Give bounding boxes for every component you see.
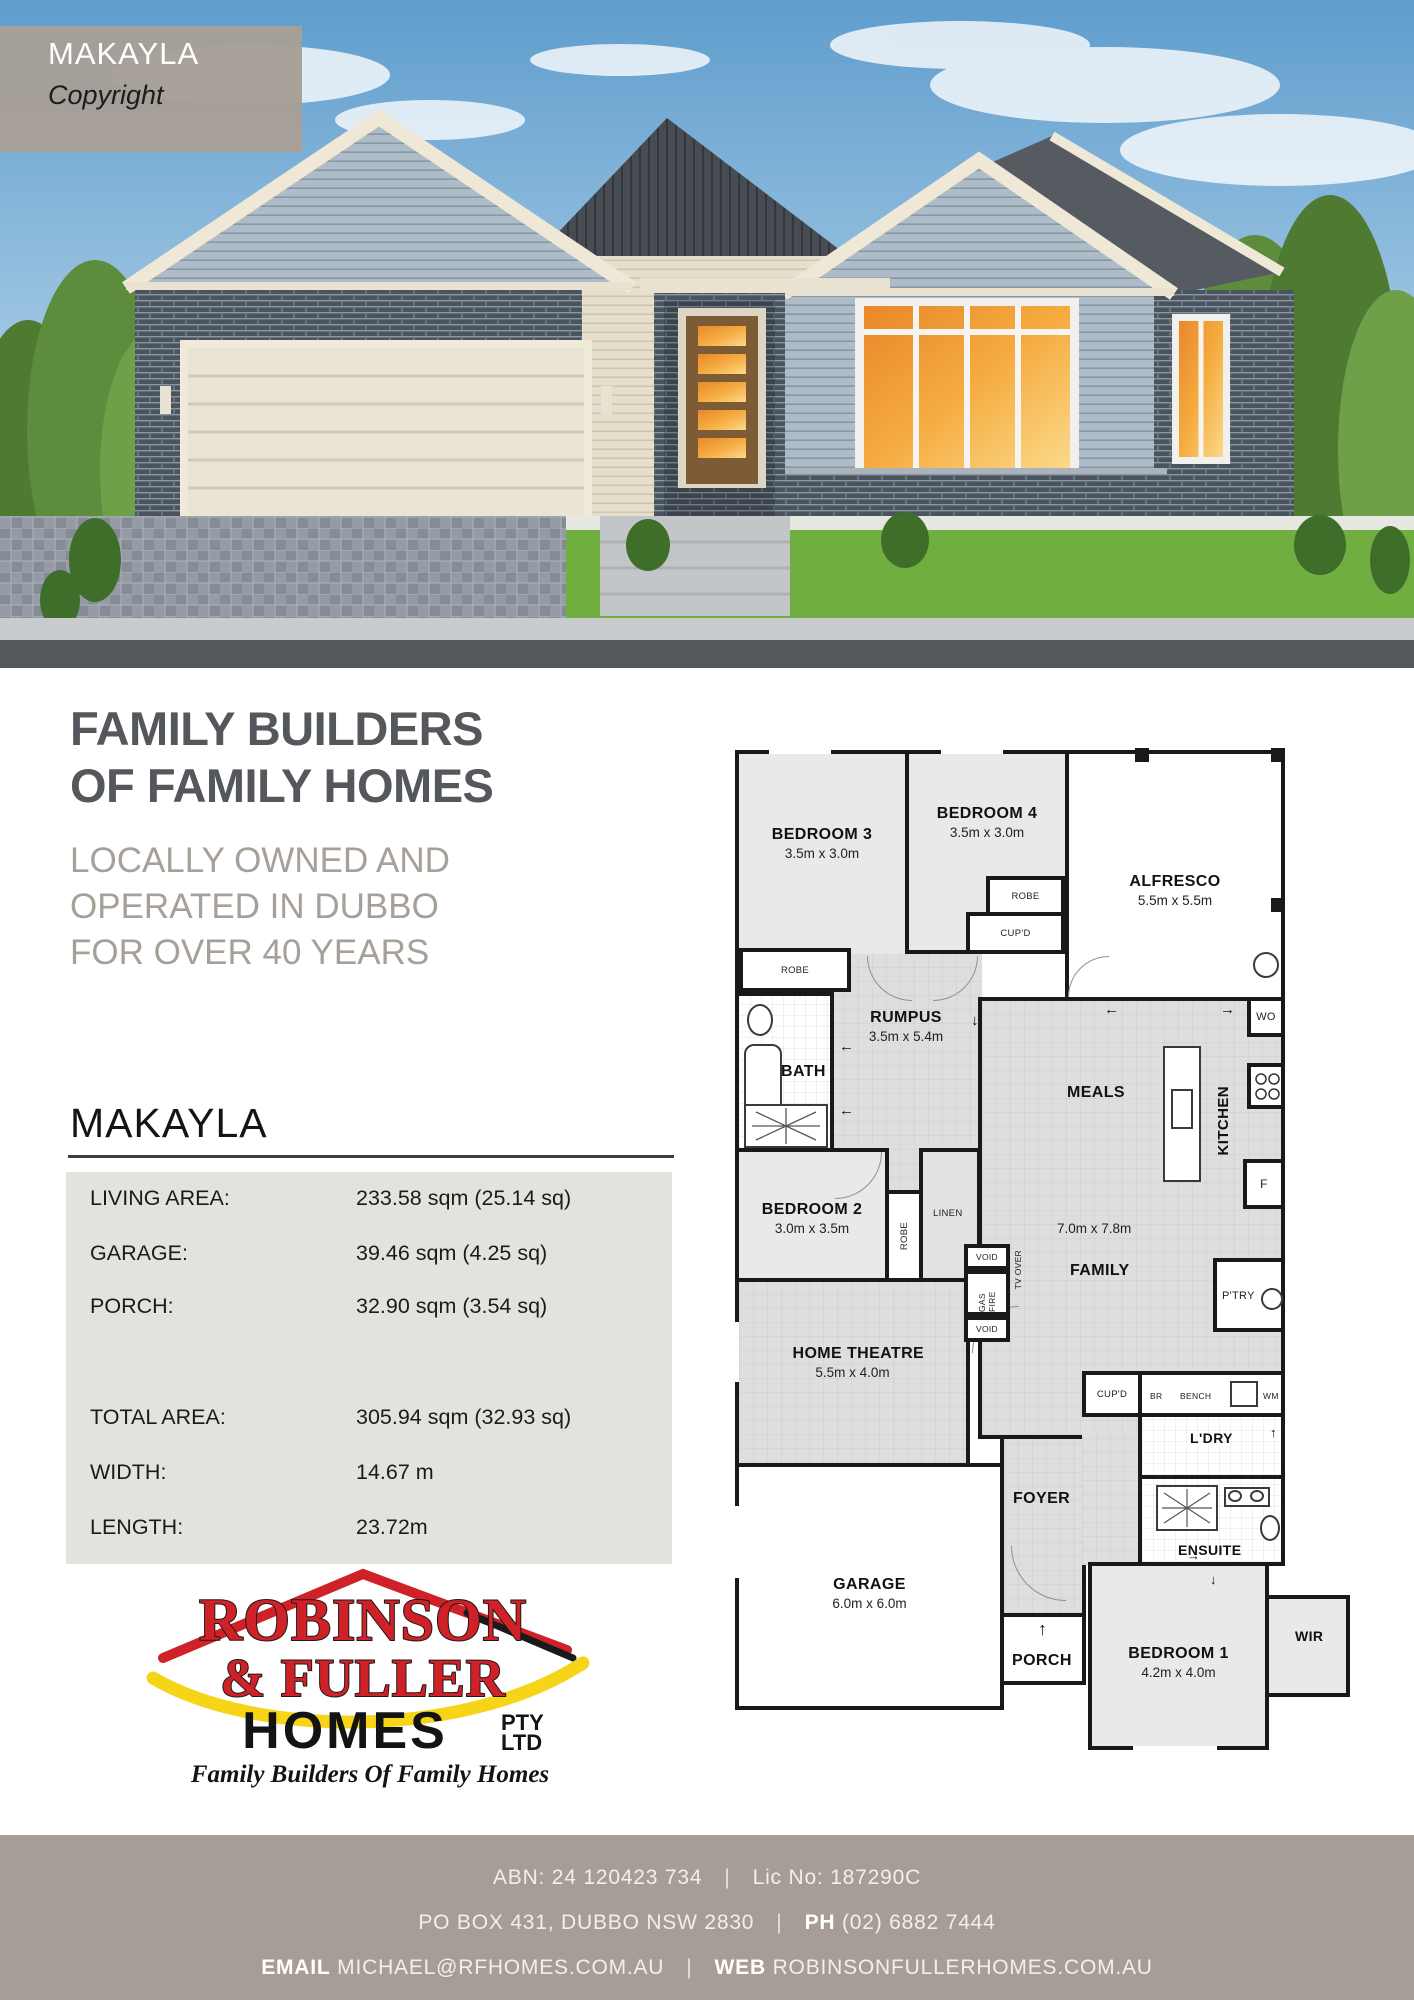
photo-label-copyright: Copyright (48, 80, 302, 111)
room-laundry: L'DRY ↑ (1138, 1413, 1285, 1479)
phone-number: (02) 6882 7444 (842, 1911, 996, 1934)
spec-value: 233.58 sqm (25.14 sq) (356, 1186, 571, 1211)
cupboard-hall: CUP'D (966, 912, 1065, 954)
subheadline-line1: LOCALLY OWNED AND (70, 838, 450, 884)
footer-line-contact: EMAIL MICHAEL@RFHOMES.COM.AU|WEB ROBINSO… (0, 1956, 1414, 1980)
void-lower: VOID (964, 1316, 1010, 1342)
wc-door-arrow-icon: ← (839, 1102, 854, 1119)
cooktop (1247, 1063, 1285, 1109)
spec-value: 305.94 sqm (32.93 sq) (356, 1405, 571, 1430)
spec-label: WIDTH: (90, 1460, 166, 1485)
laundry-door-arrow-icon: ↑ (1270, 1425, 1277, 1440)
room-garage: GARAGE 6.0m x 6.0m (735, 1463, 1004, 1710)
pantry-sink-icon (1261, 1288, 1283, 1310)
main-headline: FAMILY BUILDERS OF FAMILY HOMES (70, 700, 493, 814)
void-upper: VOID (964, 1244, 1010, 1270)
laundry-bench: BR BENCH WM (1138, 1371, 1285, 1417)
ensuite-shower-glass-icon (1156, 1485, 1218, 1531)
spec-row-length: LENGTH:23.72m (66, 1515, 672, 1543)
spec-value: 39.46 sqm (4.25 sq) (356, 1241, 547, 1266)
toilet-icon (747, 1004, 773, 1036)
svg-text:LTD: LTD (501, 1730, 542, 1755)
hallway (1082, 1433, 1142, 1565)
headline-line1: FAMILY BUILDERS (70, 700, 493, 757)
basin-icon (1228, 1490, 1242, 1502)
laundry-sink-icon (1230, 1381, 1258, 1407)
web-label: WEB (715, 1956, 766, 1979)
floor-plan: BEDROOM 3 3.5m x 3.0m BEDROOM 4 3.5m x 3… (735, 750, 1350, 1750)
room-porch: ↑ PORCH (1000, 1613, 1086, 1685)
abn-text: ABN: 24 120423 734 (493, 1866, 702, 1889)
slider-arrow-icon: ← (1104, 1001, 1119, 1018)
licence-text: Lic No: 187290C (753, 1866, 921, 1889)
web-address: ROBINSONFULLERHOMES.COM.AU (773, 1956, 1153, 1979)
window-gap (735, 1322, 739, 1382)
spec-row-porch: PORCH:32.90 sqm (3.54 sq) (66, 1294, 672, 1322)
island-sink-icon (1171, 1089, 1193, 1129)
subheadline-line3: FOR OVER 40 YEARS (70, 930, 450, 976)
svg-text:ROBINSON: ROBINSON (199, 1587, 527, 1653)
specs-table: LIVING AREA:233.58 sqm (25.14 sq) GARAGE… (66, 1172, 672, 1564)
headline-line2: OF FAMILY HOMES (70, 757, 493, 814)
svg-text:Family Builders Of Family: Family Builders Of Family Homes (190, 1761, 549, 1788)
alfresco-post (1271, 748, 1285, 762)
svg-text:HOMES: HOMES (242, 1702, 448, 1760)
footer-line-abn: ABN: 24 120423 734|Lic No: 187290C (0, 1866, 1414, 1890)
spec-label: LENGTH: (90, 1515, 183, 1540)
photo-label-title: MAKAYLA (48, 36, 302, 72)
robe-bedroom4: ROBE (986, 876, 1065, 916)
spec-label: GARAGE: (90, 1241, 188, 1266)
room-home-theatre: HOME THEATRE 5.5m x 4.0m (735, 1278, 970, 1467)
spec-value: 23.72m (356, 1515, 428, 1540)
spec-label: PORCH: (90, 1294, 174, 1319)
spec-value: 14.67 m (356, 1460, 434, 1485)
robe-bedroom2: ROBE (885, 1190, 923, 1282)
cooktop-icon (1252, 1068, 1282, 1106)
phone-label: PH (805, 1911, 836, 1934)
spec-value: 32.90 sqm (3.54 sq) (356, 1294, 547, 1319)
builder-logo-graphic: ROBINSON & FULLER HOMES PTY LTD Family B… (135, 1558, 605, 1803)
footer-bar: ABN: 24 120423 734|Lic No: 187290C PO BO… (0, 1835, 1414, 2000)
spec-label: LIVING AREA: (90, 1186, 230, 1211)
spec-row-total: TOTAL AREA:305.94 sqm (32.93 sq) (66, 1405, 672, 1433)
wall-oven: WO (1247, 997, 1285, 1037)
spec-label: TOTAL AREA: (90, 1405, 226, 1430)
window-gap (1133, 1746, 1217, 1750)
shower-glass-icon (744, 1104, 828, 1148)
cupboard-laundry: CUP'D (1082, 1371, 1142, 1417)
bedroom1-entry-arrow-icon: ↓ (1210, 1572, 1217, 1587)
email-address: MICHAEL@RFHOMES.COM.AU (337, 1956, 664, 1979)
alfresco-post (1271, 898, 1285, 912)
ensuite-toilet-icon (1260, 1515, 1280, 1541)
fridge-space: F (1243, 1159, 1285, 1209)
window-gap (941, 750, 1003, 754)
spec-row-garage: GARAGE:39.46 sqm (4.25 sq) (66, 1241, 672, 1269)
meals-entry-arrow-icon: ↓ (971, 1012, 979, 1029)
robe-bedroom3: ROBE (739, 948, 851, 992)
entry-arrow-icon: ↑ (1038, 1619, 1047, 1640)
builder-logo: ROBINSON & FULLER HOMES PTY LTD Family B… (135, 1558, 605, 1803)
bath-door-arrow-icon: ← (839, 1038, 854, 1055)
house-photo: MAKAYLA Copyright (0, 0, 1414, 668)
svg-text:& FULLER: & FULLER (220, 1648, 506, 1708)
address-text: PO BOX 431, DUBBO NSW 2830 (418, 1911, 754, 1934)
subheadline-line2: OPERATED IN DUBBO (70, 884, 450, 930)
footer-line-address: PO BOX 431, DUBBO NSW 2830|PH (02) 6882 … (0, 1911, 1414, 1935)
window-gap (769, 750, 831, 754)
room-bath: BATH (735, 992, 834, 1152)
tv-over-label: TV OVER (1013, 1250, 1023, 1289)
alfresco-post (1135, 748, 1149, 762)
slider-arrow-icon: → (1220, 1001, 1235, 1018)
email-label: EMAIL (261, 1956, 330, 1979)
room-ensuite: ENSUITE (1138, 1475, 1285, 1566)
brochure-page: MAKAYLA Copyright FAMILY BUILDERS OF FAM… (0, 0, 1414, 2000)
window-gap (735, 1506, 739, 1578)
photo-copyright-label: MAKAYLA Copyright (0, 26, 302, 152)
room-pantry: P'TRY (1213, 1258, 1285, 1332)
room-wir: WIR (1265, 1595, 1350, 1697)
ensuite-entry-arrow-icon: → (1187, 1548, 1200, 1563)
plan-name-title: MAKAYLA (70, 1100, 268, 1147)
gas-fire: GAS FIRE (964, 1270, 1010, 1316)
sink-icon (1253, 952, 1279, 978)
room-bedroom1: BEDROOM 1 4.2m x 4.0m ↓ (1088, 1562, 1269, 1750)
title-divider (68, 1155, 674, 1158)
spec-row-width: WIDTH:14.67 m (66, 1460, 672, 1488)
spec-row-living: LIVING AREA:233.58 sqm (25.14 sq) (66, 1186, 672, 1214)
basin-icon (1250, 1490, 1264, 1502)
sub-headline: LOCALLY OWNED AND OPERATED IN DUBBO FOR … (70, 838, 450, 976)
